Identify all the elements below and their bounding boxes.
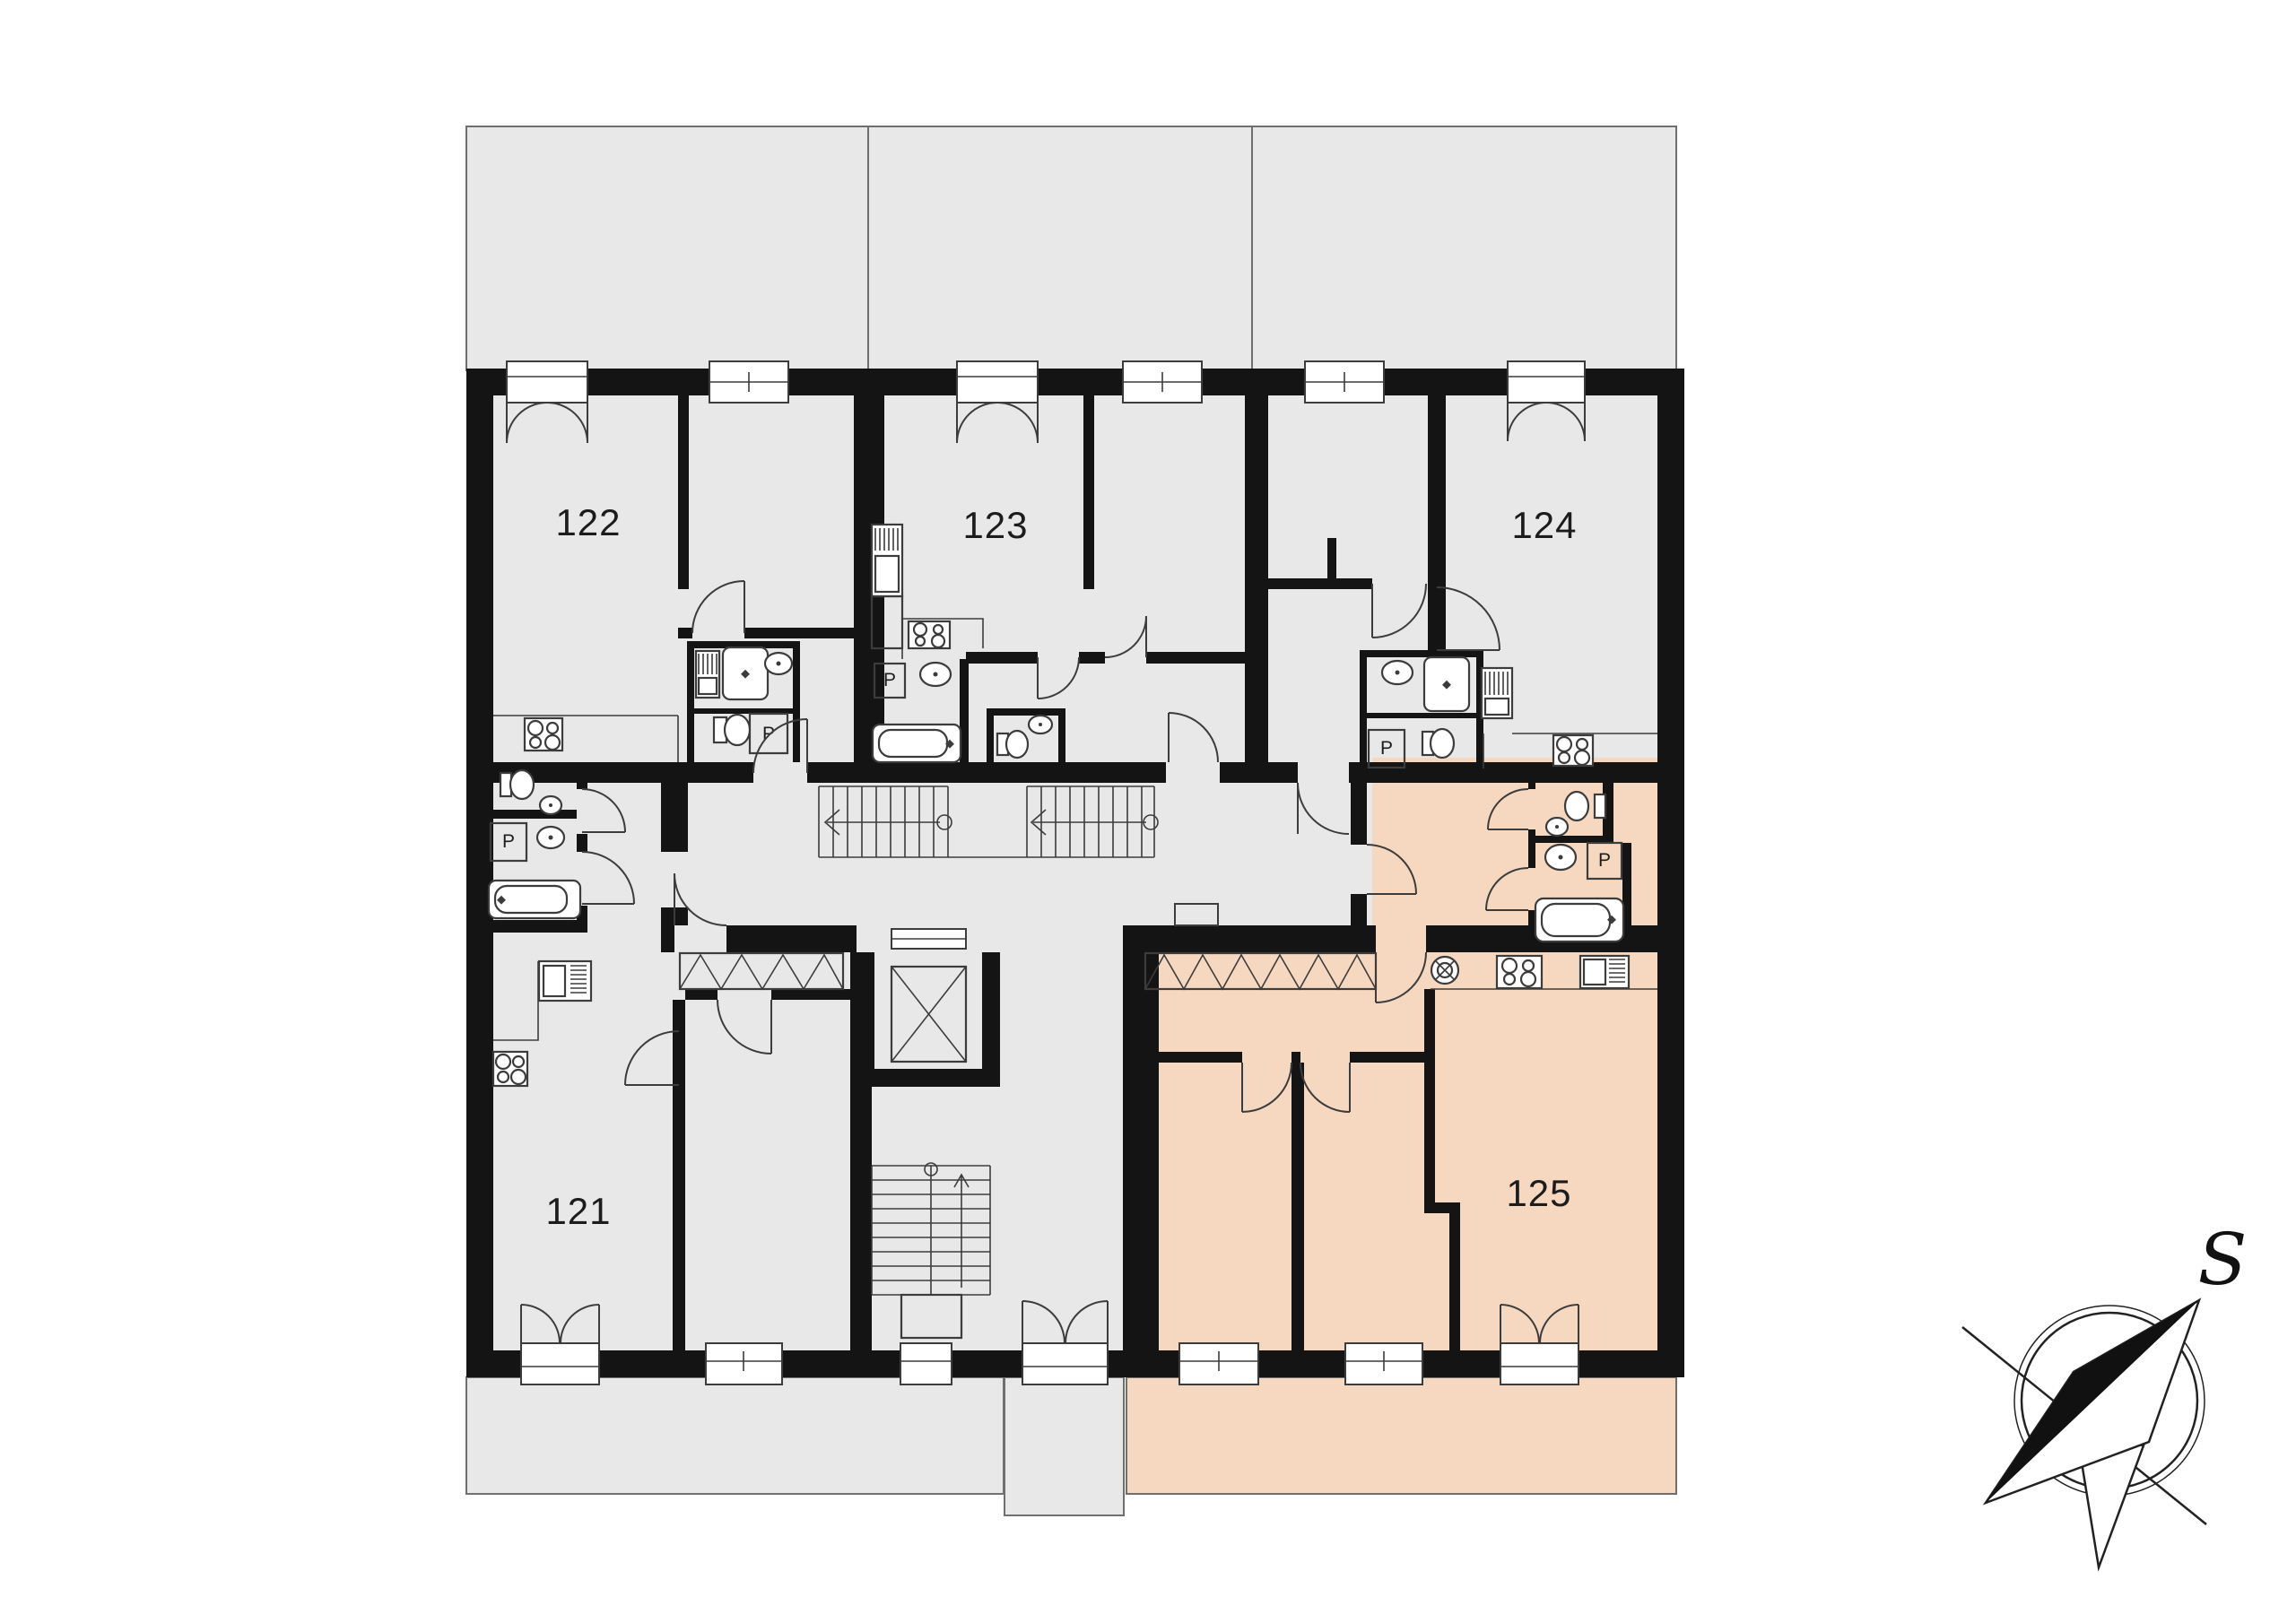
window-stairwell bbox=[900, 1343, 952, 1384]
terrace-top-middle bbox=[868, 126, 1252, 370]
wall-125-bedA-bedB bbox=[1291, 1063, 1304, 1350]
toilet-icon-124 bbox=[1422, 729, 1454, 758]
sink-icon-123 bbox=[920, 663, 951, 686]
stove-icon-121 bbox=[493, 1052, 527, 1086]
floor-plan-drawing: P P P P bbox=[0, 0, 2296, 1623]
apartment-122-label: 122 bbox=[555, 501, 621, 543]
washing-machine-icon-124 bbox=[1482, 668, 1512, 718]
wall-outer-top bbox=[466, 369, 1684, 395]
window-122-bedroom bbox=[709, 361, 788, 403]
kitchen-sink-unit-125 bbox=[1580, 956, 1629, 988]
terrace-bottom-right-highlighted bbox=[1126, 1377, 1676, 1494]
terrace-top-left bbox=[466, 126, 868, 370]
building-base bbox=[475, 378, 1675, 1368]
sink-icon-wc-121 bbox=[540, 796, 561, 814]
stove-icon-122 bbox=[525, 718, 562, 751]
wall-stairhall-125 bbox=[1123, 952, 1159, 1350]
shower-icon-122 bbox=[723, 647, 768, 699]
sink-icon-121 bbox=[537, 827, 564, 848]
toilet-icon-125 bbox=[1565, 792, 1605, 820]
window-125-bedB bbox=[1345, 1343, 1422, 1384]
toilet-icon-wc-123 bbox=[997, 731, 1028, 758]
apartment-124-label: 124 bbox=[1511, 504, 1577, 546]
wall-outer-left bbox=[466, 369, 493, 1377]
sink-icon-wc-123 bbox=[1029, 716, 1052, 733]
wall-124-bed-living bbox=[1428, 395, 1446, 650]
fridge-unit-123 bbox=[872, 525, 902, 596]
apartment-125-label: 125 bbox=[1506, 1172, 1571, 1214]
entrance-walkway bbox=[1004, 1377, 1124, 1515]
terrace-top-right bbox=[1252, 126, 1676, 370]
apartment-121-label: 121 bbox=[545, 1190, 611, 1232]
window-125-bedA bbox=[1179, 1343, 1258, 1384]
compass-south-label: S bbox=[2198, 1218, 2248, 1301]
washing-machine-label-124: P bbox=[1380, 738, 1393, 759]
terrace-bottom-left bbox=[466, 1377, 1004, 1494]
washing-machine-label-123: P bbox=[883, 670, 896, 690]
washing-machine-icon-122 bbox=[696, 651, 719, 698]
washing-machine-label-125: P bbox=[1598, 850, 1611, 871]
fan-icon-125 bbox=[1431, 957, 1458, 984]
wall-123-living-bed bbox=[1083, 395, 1094, 589]
sink-icon-124 bbox=[1382, 661, 1413, 684]
sink-icon-122 bbox=[765, 653, 792, 674]
sink-icon-wc-125 bbox=[1546, 818, 1568, 836]
bathtub-icon-123 bbox=[873, 725, 961, 762]
toilet-icon-121 bbox=[500, 770, 534, 799]
stove-icon-125 bbox=[1497, 956, 1542, 988]
compass-rose: S bbox=[1962, 1218, 2247, 1567]
stove-icon-124 bbox=[1553, 735, 1593, 766]
kitchen-sink-unit-121 bbox=[539, 961, 591, 1001]
bathtub-icon-121 bbox=[489, 881, 580, 918]
window-123-bedroom bbox=[1123, 361, 1202, 403]
stove-icon-123 bbox=[909, 621, 950, 648]
shower-icon-124 bbox=[1424, 657, 1469, 711]
floor-plan-page: P P P P bbox=[0, 0, 2296, 1623]
wall-123-124 bbox=[1245, 395, 1268, 762]
wall-122-living-bed bbox=[678, 395, 689, 589]
window-124-bedroom bbox=[1305, 361, 1384, 403]
apartment-123-label: 123 bbox=[962, 504, 1028, 546]
sink-icon-bath-125 bbox=[1545, 845, 1576, 870]
window-121-bedroom bbox=[706, 1343, 782, 1384]
duct-shaft bbox=[1175, 904, 1218, 925]
bathtub-icon-125 bbox=[1535, 898, 1623, 942]
washing-machine-label-121: P bbox=[502, 831, 515, 852]
toilet-icon-122 bbox=[714, 715, 750, 745]
wall-121-living-bed bbox=[673, 1000, 685, 1350]
wall-outer-right bbox=[1657, 369, 1684, 1377]
